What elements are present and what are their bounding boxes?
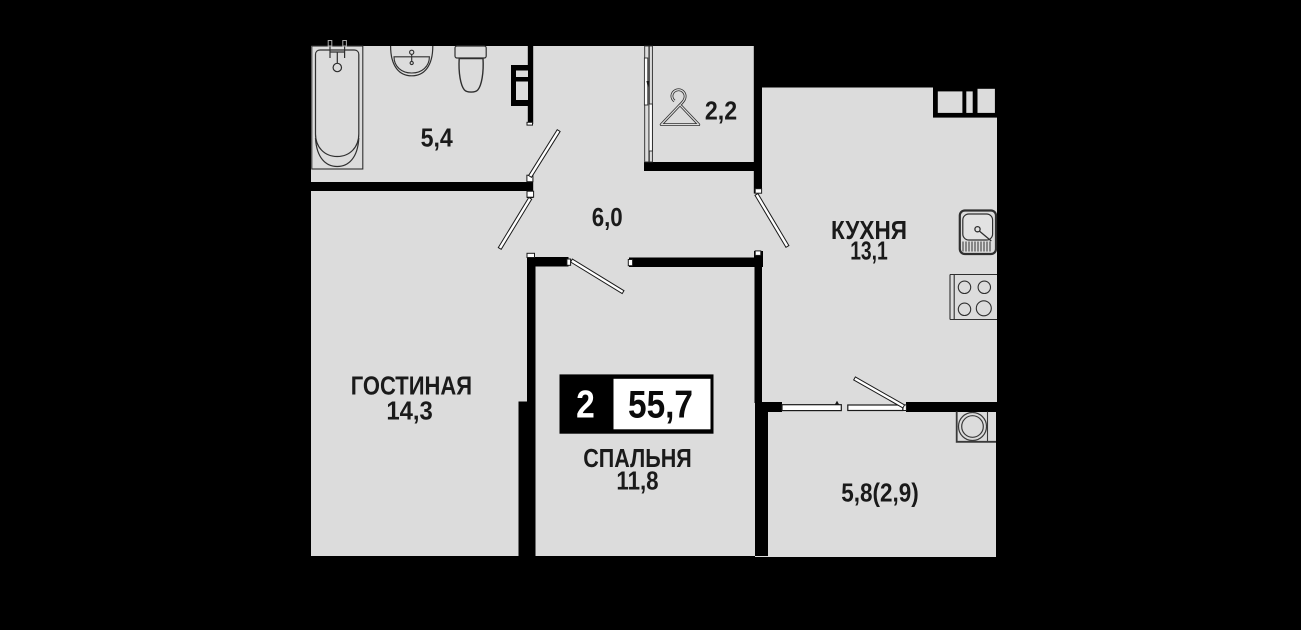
svg-text:13,1: 13,1: [850, 236, 888, 266]
svg-text:6,0: 6,0: [592, 202, 623, 232]
svg-text:55,7: 55,7: [628, 384, 693, 427]
svg-text:2,2: 2,2: [705, 95, 737, 125]
svg-text:5,8(2,9): 5,8(2,9): [841, 478, 918, 508]
svg-text:5,4: 5,4: [421, 122, 454, 152]
svg-text:2: 2: [576, 384, 595, 427]
svg-text:11,8: 11,8: [616, 466, 658, 496]
svg-text:14,3: 14,3: [386, 395, 433, 425]
